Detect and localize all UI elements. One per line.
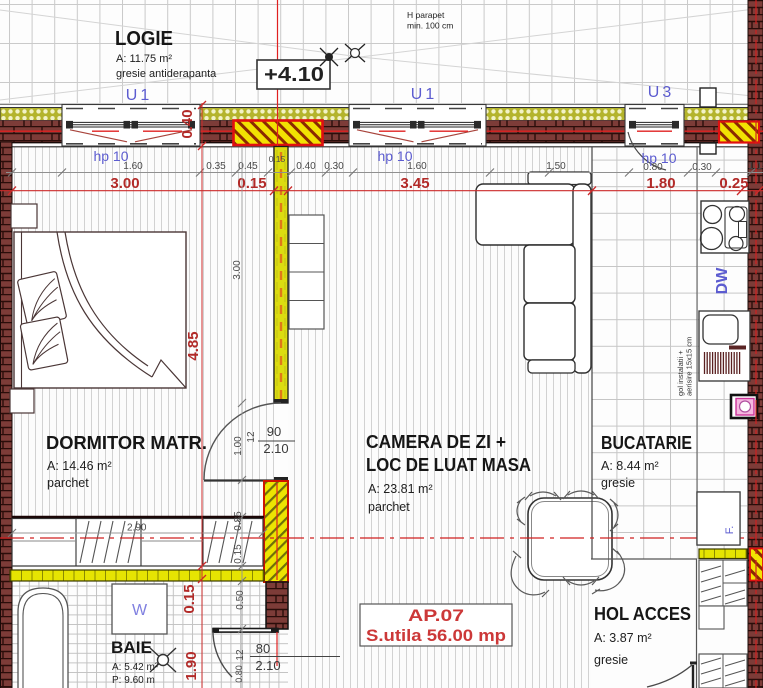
svg-text:LOC DE LUAT MASA: LOC DE LUAT MASA — [366, 455, 531, 475]
svg-text:1.00: 1.00 — [233, 436, 244, 456]
svg-text:12: 12 — [235, 649, 246, 661]
svg-text:parchet: parchet — [47, 476, 89, 490]
svg-text:A: 8.44 m²: A: 8.44 m² — [601, 459, 659, 473]
svg-text:0.15: 0.15 — [269, 154, 286, 164]
svg-text:0.40: 0.40 — [179, 109, 196, 138]
svg-text:aerisire 15x15 cm: aerisire 15x15 cm — [685, 337, 694, 396]
svg-text:P: 9.60 m: P: 9.60 m — [112, 675, 155, 686]
svg-text:DORMITOR MATR.: DORMITOR MATR. — [46, 433, 207, 453]
svg-text:0.85: 0.85 — [233, 511, 244, 531]
svg-text:HOL ACCES: HOL ACCES — [594, 604, 691, 624]
svg-text:A: 5.42 m²: A: 5.42 m² — [112, 662, 159, 673]
svg-text:0.15: 0.15 — [233, 544, 244, 564]
svg-text:2.90: 2.90 — [127, 523, 147, 534]
svg-text:A: 14.46 m²: A: 14.46 m² — [47, 459, 112, 473]
svg-text:hp 10: hp 10 — [93, 148, 128, 164]
svg-text:U1: U1 — [411, 86, 437, 103]
svg-text:3.45: 3.45 — [400, 175, 429, 192]
svg-text:1.80: 1.80 — [646, 175, 675, 192]
svg-text:80: 80 — [256, 641, 270, 656]
svg-text:U1: U1 — [126, 87, 152, 104]
svg-text:U3: U3 — [648, 84, 674, 101]
svg-text:CAMERA DE ZI +: CAMERA DE ZI + — [366, 432, 506, 452]
svg-text:90: 90 — [267, 424, 281, 439]
svg-text:1.50: 1.50 — [546, 161, 566, 172]
svg-text:gresie antiderapanta: gresie antiderapanta — [116, 68, 217, 80]
svg-text:parchet: parchet — [368, 500, 410, 514]
svg-text:0.30: 0.30 — [324, 161, 344, 172]
svg-text:+4.10: +4.10 — [264, 64, 324, 86]
svg-text:S.utila 56.00 mp: S.utila 56.00 mp — [366, 626, 506, 645]
svg-text:0.15: 0.15 — [181, 584, 198, 613]
svg-text:F.: F. — [724, 526, 736, 535]
svg-text:12: 12 — [246, 431, 257, 443]
svg-text:2.10: 2.10 — [263, 441, 288, 456]
svg-text:gresie: gresie — [601, 476, 635, 490]
svg-text:A: 23.81 m²: A: 23.81 m² — [368, 482, 433, 496]
svg-text:hp 10: hp 10 — [377, 148, 412, 164]
svg-text:0.45: 0.45 — [238, 161, 258, 172]
svg-text:BAIE: BAIE — [111, 638, 152, 657]
svg-text:H parapet: H parapet — [407, 10, 445, 20]
svg-text:A: 3.87 m²: A: 3.87 m² — [594, 631, 652, 645]
svg-text:BUCATARIE: BUCATARIE — [601, 433, 692, 453]
svg-text:W: W — [132, 602, 148, 619]
svg-text:0.50: 0.50 — [235, 590, 246, 610]
svg-text:4.85: 4.85 — [185, 331, 202, 360]
svg-text:1.90: 1.90 — [183, 651, 200, 680]
svg-text:0.35: 0.35 — [206, 161, 226, 172]
svg-text:AP.07: AP.07 — [408, 606, 464, 625]
svg-text:0.40: 0.40 — [296, 161, 316, 172]
svg-text:3.00: 3.00 — [232, 260, 243, 280]
svg-text:min. 100 cm: min. 100 cm — [407, 21, 453, 31]
svg-text:gresie: gresie — [594, 653, 628, 667]
svg-text:0.30: 0.30 — [692, 162, 712, 173]
svg-text:hp 10: hp 10 — [641, 150, 676, 166]
svg-text:1.15: 1.15 — [748, 161, 763, 172]
svg-text:DW: DW — [714, 267, 731, 295]
svg-text:0.25: 0.25 — [719, 175, 748, 192]
svg-text:LOGIE: LOGIE — [115, 28, 173, 50]
svg-text:2.10: 2.10 — [255, 658, 280, 673]
svg-text:0.80: 0.80 — [234, 665, 244, 683]
svg-text:A: 11.75 m²: A: 11.75 m² — [116, 53, 172, 65]
svg-text:3.00: 3.00 — [110, 175, 139, 192]
